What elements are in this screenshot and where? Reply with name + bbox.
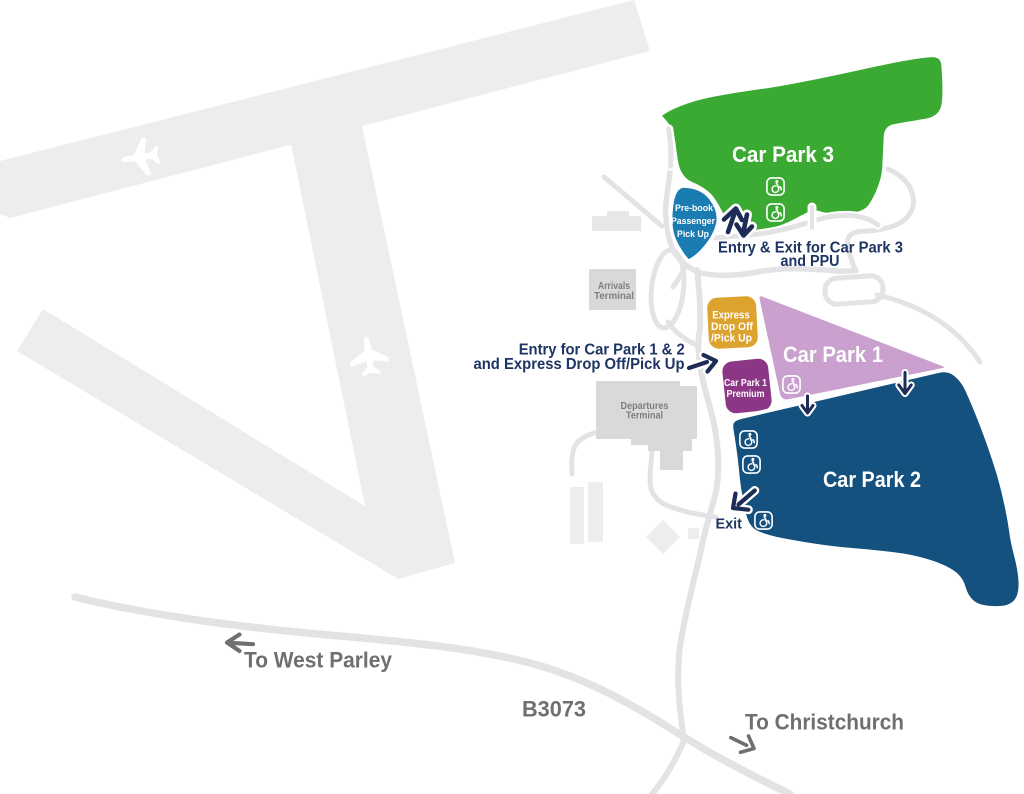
- svg-text:Express: Express: [712, 310, 750, 322]
- svg-text:Car Park 1: Car Park 1: [783, 342, 883, 367]
- svg-text:Pre-book: Pre-book: [675, 203, 714, 214]
- svg-text:To Christchurch: To Christchurch: [745, 710, 904, 735]
- svg-text:Car Park 2: Car Park 2: [823, 467, 921, 492]
- svg-text:and PPU: and PPU: [781, 253, 840, 270]
- svg-text:Car Park 3: Car Park 3: [732, 142, 834, 167]
- svg-text:Terminal: Terminal: [594, 290, 634, 302]
- svg-text:/Pick Up: /Pick Up: [711, 333, 752, 345]
- svg-text:To West Parley: To West Parley: [244, 648, 393, 673]
- svg-text:Drop Off: Drop Off: [711, 321, 753, 333]
- svg-text:and Express Drop Off/Pick Up: and Express Drop Off/Pick Up: [474, 356, 685, 373]
- svg-text:Exit: Exit: [716, 517, 743, 533]
- svg-text:Terminal: Terminal: [626, 410, 663, 422]
- svg-text:Premium: Premium: [727, 388, 765, 400]
- svg-text:Pick Up: Pick Up: [677, 229, 709, 240]
- svg-text:Passenger: Passenger: [671, 216, 715, 227]
- svg-text:B3073: B3073: [522, 697, 586, 722]
